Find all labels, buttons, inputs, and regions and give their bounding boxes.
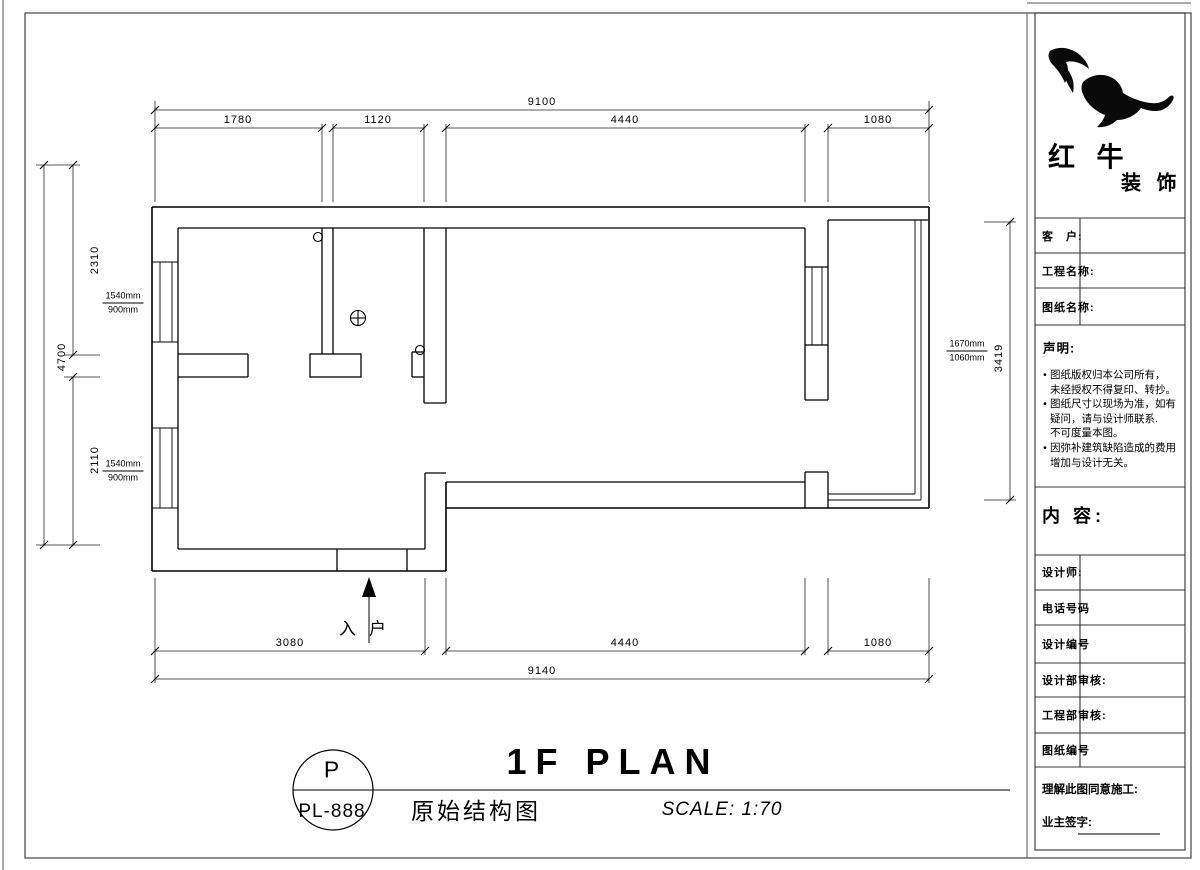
- declaration-line: 增加与设计无关。: [1040, 456, 1182, 471]
- dim-top-seg-1: 1780: [224, 114, 252, 126]
- declaration-line: •因弥补建筑缺陷造成的费用: [1040, 441, 1182, 456]
- declaration-line-text: 不可度量本图。: [1050, 426, 1124, 441]
- window-sill-height: 900mm: [108, 472, 138, 484]
- dim-top-seg-2: 1120: [364, 114, 392, 126]
- field-label-drawing: 图纸名称:: [1042, 299, 1095, 315]
- declaration-line: 不可度量本图。: [1040, 426, 1182, 441]
- dim-bottom-total: 9140: [528, 665, 556, 677]
- floor-plan-outer-walls: [152, 207, 929, 571]
- dim-left-total: 4700: [56, 343, 68, 371]
- bullet: •: [1040, 441, 1050, 456]
- dim-right-height: 3419: [993, 344, 1005, 372]
- field-label-project: 工程名称:: [1042, 263, 1095, 279]
- dim-top-seg-3: 4440: [611, 114, 639, 126]
- dim-left-seg-2: 2110: [89, 446, 101, 474]
- window-width: 1540mm: [102, 459, 143, 472]
- declaration-line-text: 增加与设计无关。: [1050, 456, 1134, 471]
- owner-signature-label: 业主签字:: [1042, 814, 1092, 830]
- field-label-phone: 电话号码: [1042, 600, 1090, 616]
- declaration-line: 疑问，请与设计师联系.: [1040, 412, 1182, 427]
- field-label-design-no: 设计编号: [1042, 636, 1090, 652]
- window-sill-height: 1060mm: [949, 352, 984, 364]
- declaration-title: 声明:: [1043, 338, 1075, 357]
- page-title-cn: 原始结构图: [411, 792, 541, 826]
- entry-label: 入户: [339, 615, 399, 640]
- field-label-sheet-no: 图纸编号: [1042, 742, 1090, 758]
- flue-symbol-icon: [350, 310, 366, 326]
- declaration-line-text: 因弥补建筑缺陷造成的费用: [1050, 441, 1176, 456]
- declaration-line-text: 图纸版权归本公司所有，: [1050, 368, 1166, 383]
- riser-circle-icon: [314, 233, 323, 242]
- reference-code: PL-888: [298, 801, 365, 823]
- field-label-designer: 设计师:: [1042, 564, 1083, 580]
- bullet: •: [1040, 397, 1050, 412]
- bullet: [1040, 383, 1050, 398]
- sheet-linework: [0, 0, 1200, 870]
- riser-circle-icon: [416, 346, 425, 355]
- brand-subname: 装 饰: [1121, 167, 1182, 196]
- window-sill-height: 900mm: [108, 304, 138, 316]
- window-label-right: 1670mm 1060mm: [946, 339, 987, 364]
- content-label: 内 容:: [1042, 502, 1105, 528]
- window-width: 1540mm: [102, 291, 143, 304]
- field-label-eng-review: 工程部审核:: [1042, 707, 1107, 723]
- window-label-left-lower: 1540mm 900mm: [102, 459, 143, 484]
- declaration-line: •图纸尺寸以现场为准，如有: [1040, 397, 1182, 412]
- dim-top-seg-4: 1080: [864, 114, 892, 126]
- floor-plan-interior-walls: [178, 220, 928, 571]
- drawing-sheet: 9100 1780 1120 4440 1080 3080 4440 1080 …: [0, 0, 1200, 870]
- declaration-text: •图纸版权归本公司所有， 未经授权不得复印、转抄。 •图纸尺寸以现场为准，如有 …: [1040, 368, 1182, 470]
- brand-name: 红 牛: [1048, 136, 1131, 175]
- paper-border: [3, 0, 1191, 870]
- window-label-left-upper: 1540mm 900mm: [102, 291, 143, 316]
- window-glazing-lines: [152, 220, 921, 508]
- declaration-line-text: 疑问，请与设计师联系.: [1050, 412, 1158, 427]
- brand-logo-bull-icon: [1049, 48, 1174, 127]
- pipe-riser-symbols: [314, 233, 425, 355]
- dimension-ticks: [40, 106, 1014, 683]
- bullet: [1040, 456, 1050, 471]
- construction-agreement-label: 理解此图同意施工:: [1042, 781, 1138, 797]
- declaration-line: 未经授权不得复印、转抄。: [1040, 383, 1182, 398]
- field-label-design-review: 设计部审核:: [1042, 672, 1107, 688]
- bullet: •: [1040, 368, 1050, 383]
- dimension-lines: [36, 101, 1016, 683]
- declaration-line-text: 未经授权不得复印、转抄。: [1050, 383, 1176, 398]
- dim-top-total: 9100: [528, 96, 556, 108]
- page-title: 1F PLAN: [506, 741, 719, 783]
- bullet: [1040, 412, 1050, 427]
- dim-bottom-seg-2: 4440: [611, 637, 639, 649]
- declaration-line-text: 图纸尺寸以现场为准，如有: [1050, 397, 1176, 412]
- declaration-line: •图纸版权归本公司所有，: [1040, 368, 1182, 383]
- window-width: 1670mm: [946, 339, 987, 352]
- dim-left-seg-1: 2310: [89, 246, 101, 274]
- reference-letter: P: [324, 757, 340, 784]
- dim-bottom-seg-3: 1080: [864, 637, 892, 649]
- field-label-client: 客 户:: [1042, 228, 1083, 244]
- scale-note: SCALE: 1:70: [662, 799, 783, 821]
- dim-bottom-seg-1: 3080: [276, 637, 304, 649]
- bullet: [1040, 426, 1050, 441]
